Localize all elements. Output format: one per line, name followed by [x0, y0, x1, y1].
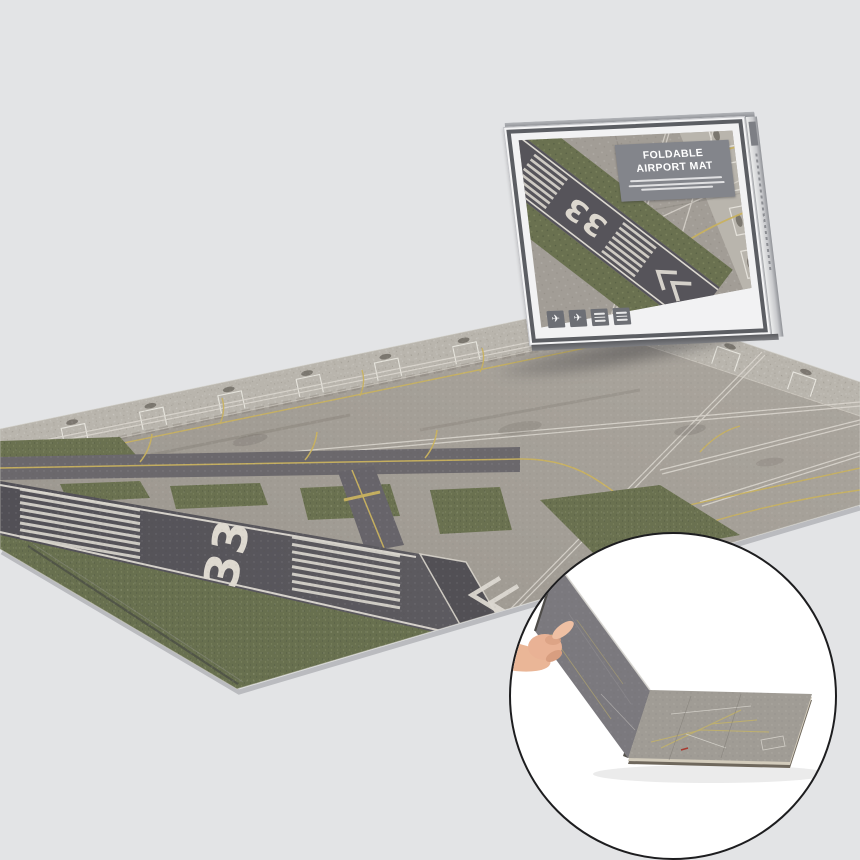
folded-mat-base: [628, 690, 812, 762]
box-title: FOLDABLE AIRPORT MAT: [620, 146, 727, 176]
badge-1: ✈: [546, 310, 565, 328]
box-front: 33: [503, 116, 771, 346]
box-title-label: FOLDABLE AIRPORT MAT: [615, 140, 736, 202]
airplane-icon: ✈: [573, 313, 583, 323]
airplane-icon: ✈: [551, 314, 561, 324]
badge-3: [590, 308, 609, 326]
spine-label: [748, 122, 758, 146]
product-box: 33: [503, 115, 784, 352]
folding-demo: [511, 534, 835, 858]
folding-demo-inset: [509, 532, 837, 860]
badge-2: ✈: [568, 309, 587, 327]
badge-4: [612, 307, 631, 325]
box-frame: 33: [506, 119, 768, 343]
product-photo: 33: [0, 0, 860, 860]
label-fine-print: [624, 176, 729, 192]
inset-shadow: [593, 765, 829, 783]
